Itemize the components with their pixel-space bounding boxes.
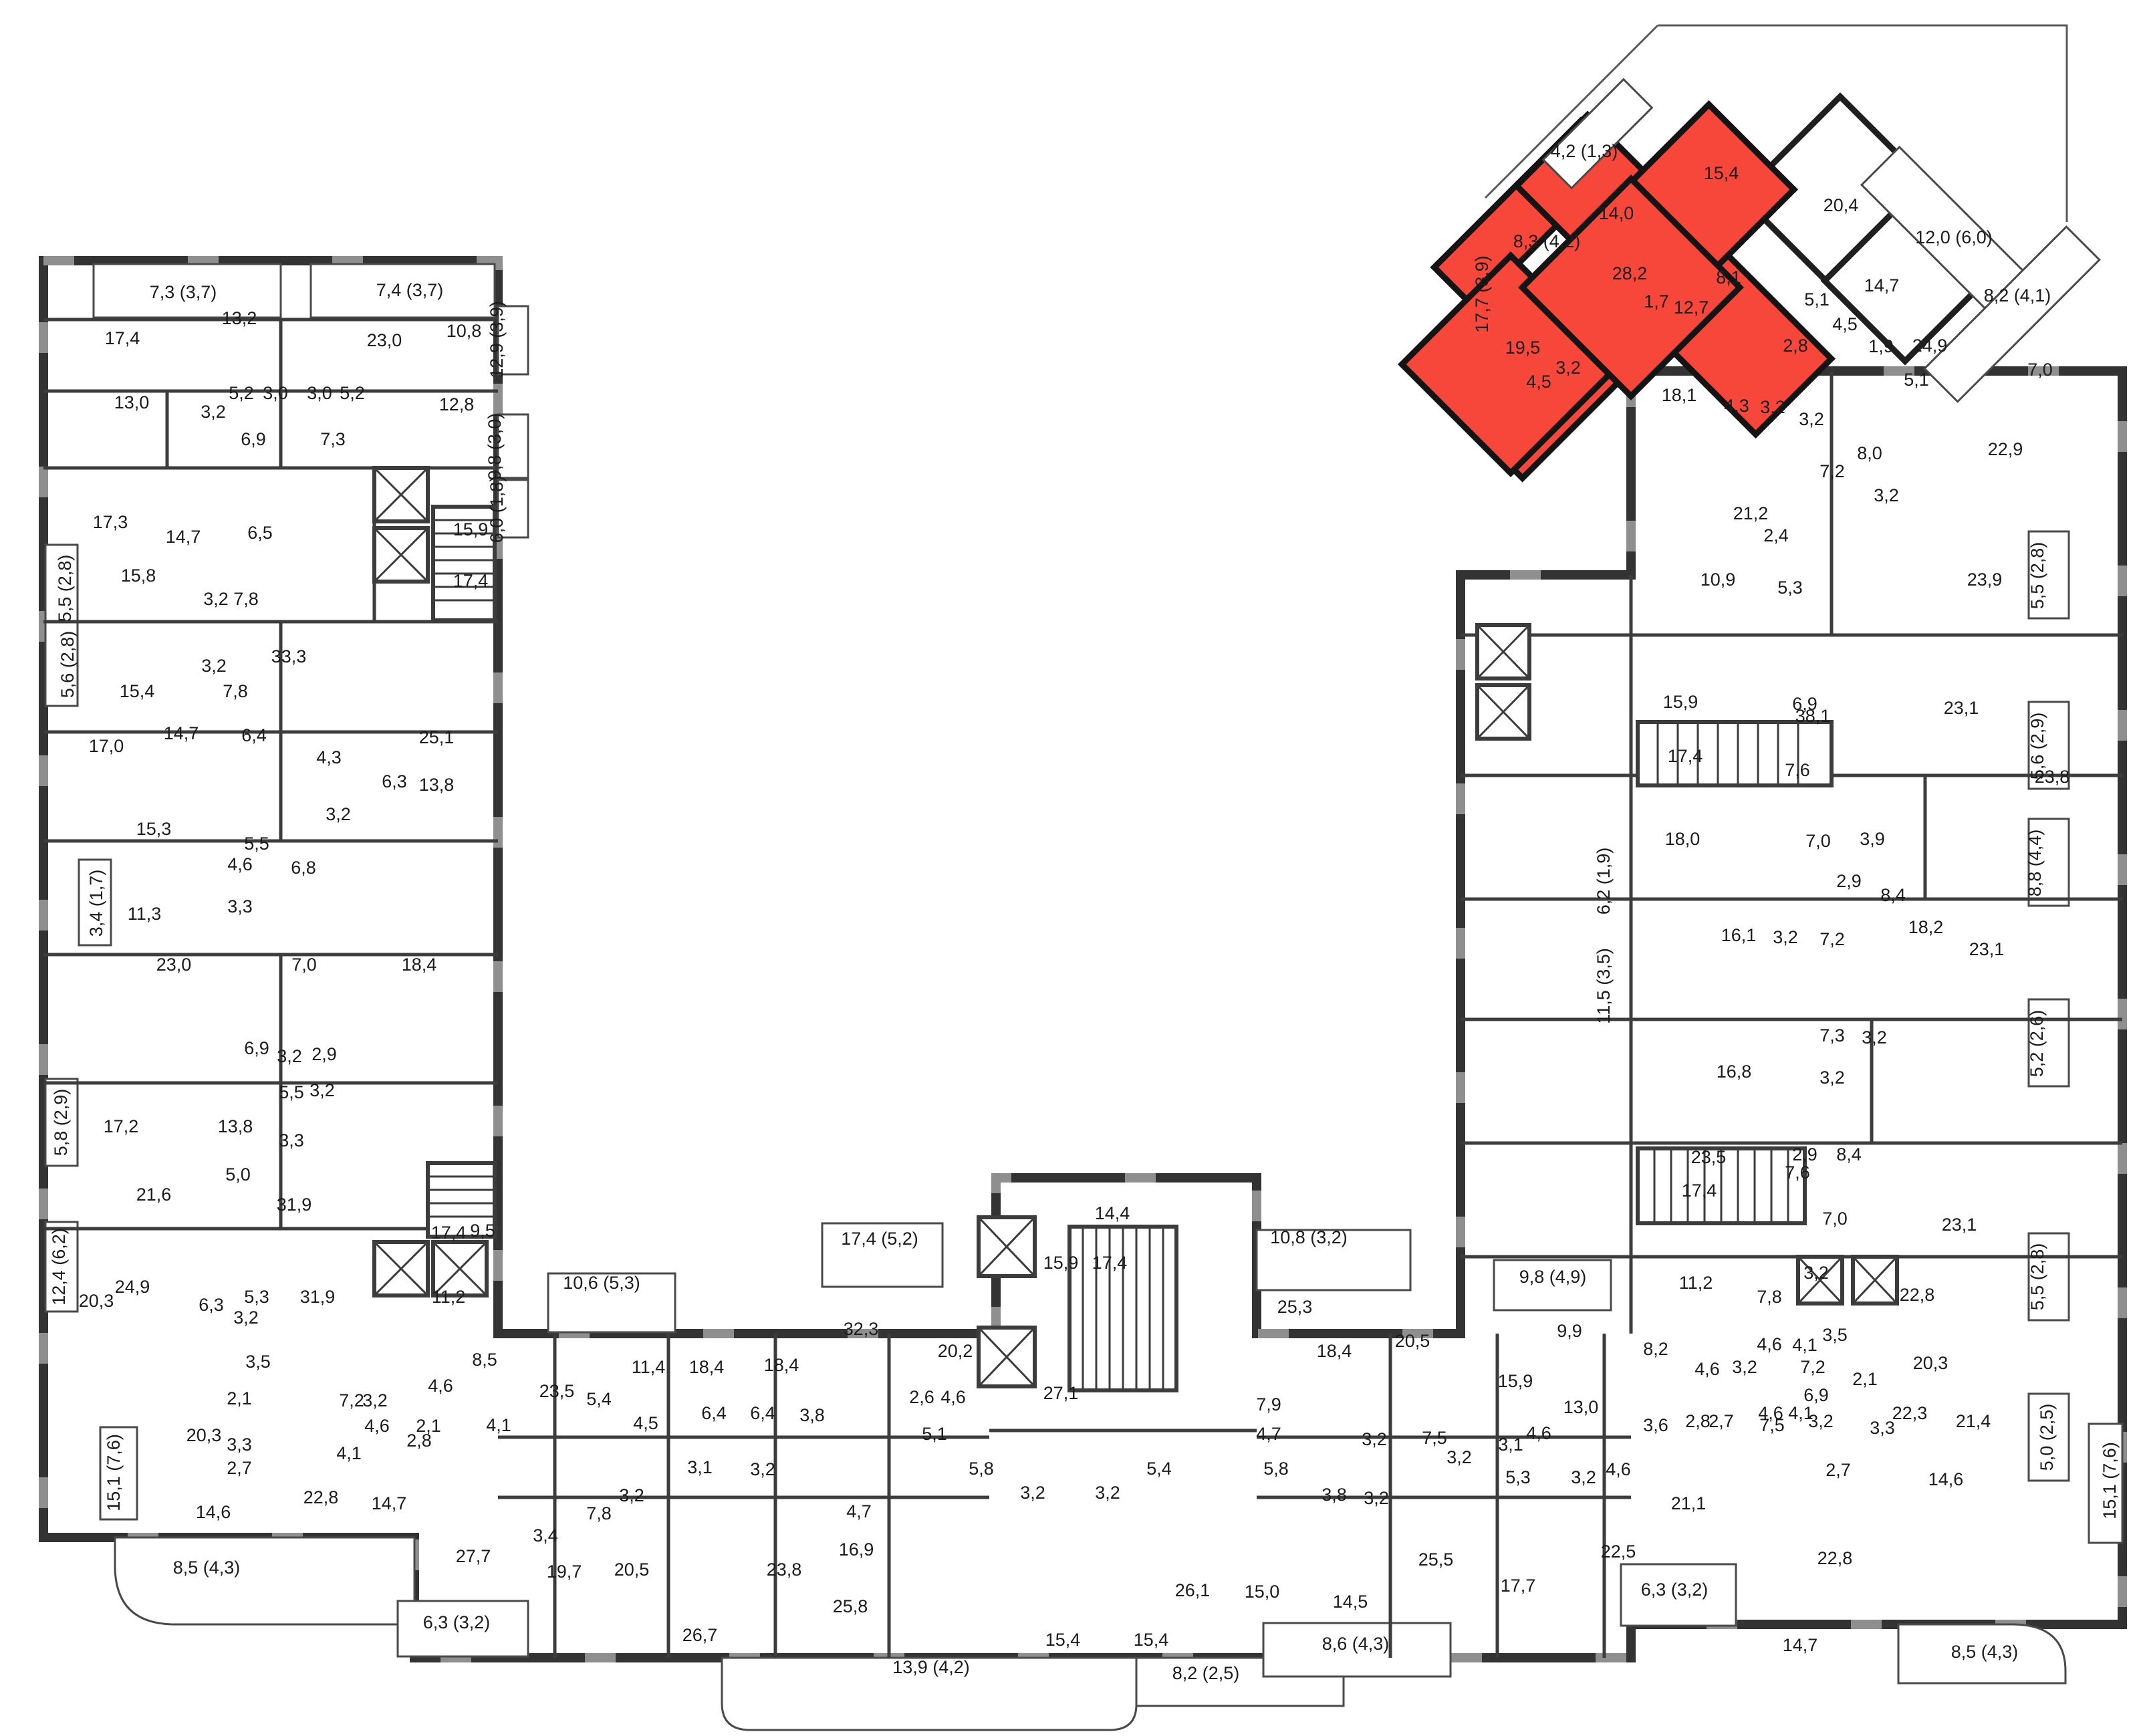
area-label: 14,4 — [1095, 1203, 1130, 1223]
area-label: 3,2 — [1555, 358, 1581, 378]
area-label: 3,1 — [1498, 1435, 1523, 1455]
area-label: 6,4 — [701, 1403, 727, 1423]
area-label: 4,6 — [428, 1376, 453, 1396]
area-label: 3,0 — [307, 383, 332, 403]
area-label: 17,7 (8,9) — [1472, 255, 1492, 333]
area-label: 18,2 — [1908, 917, 1944, 937]
area-label: 1,7 — [1644, 291, 1669, 312]
area-label: 17,3 — [93, 512, 128, 532]
area-label: 5,2 (2,6) — [2027, 1010, 2047, 1078]
area-label: 20,5 — [1395, 1331, 1430, 1351]
area-label: 3,6 — [1643, 1415, 1668, 1435]
area-label: 2,6 — [909, 1387, 934, 1407]
area-label: 13,8 — [218, 1116, 253, 1136]
area-label: 8,2 (2,5) — [1172, 1663, 1240, 1683]
area-label: 4,6 — [227, 854, 253, 874]
area-label: 18,0 — [1665, 829, 1701, 849]
area-label: 15,4 — [1704, 163, 1739, 183]
area-label: 12,0 (6,0) — [1915, 227, 1993, 247]
area-label: 16,8 — [1717, 1062, 1752, 1082]
area-label: 32,3 — [844, 1319, 879, 1339]
area-label: 3,3 — [227, 1435, 252, 1455]
area-label: 6,9 — [244, 1038, 269, 1058]
area-label: 19,7 — [547, 1562, 582, 1582]
area-label: 21,6 — [136, 1185, 172, 1205]
area-label: 12,4 (6,2) — [49, 1228, 69, 1306]
area-label: 16,9 — [839, 1539, 874, 1560]
area-label: 33,3 — [271, 646, 307, 666]
area-label: 18,4 — [1317, 1341, 1352, 1361]
area-label: 4,3 — [316, 747, 342, 767]
area-label: 8,2 (4,1) — [1984, 285, 2051, 305]
area-label: 4,2 (1,3) — [1551, 141, 1618, 161]
area-label: 8,8 (4,4) — [2025, 830, 2045, 897]
area-label: 18,4 — [689, 1357, 725, 1377]
area-label: 6,3 (3,2) — [1641, 1580, 1709, 1600]
area-label: 19,5 — [1505, 338, 1541, 358]
area-label: 8,0 — [1857, 443, 1882, 463]
area-label: 13,2 — [222, 308, 257, 328]
area-label: 38,1 — [1795, 706, 1831, 726]
area-label: 15,4 — [120, 681, 155, 701]
area-label: 12,9 (3,9) — [487, 301, 507, 378]
area-label: 21,1 — [1671, 1493, 1707, 1513]
area-label: 25,3 — [1277, 1297, 1313, 1317]
area-label: 5,1 — [922, 1424, 947, 1444]
area-label: 6,8 — [291, 858, 316, 878]
area-label: 3,2 — [201, 656, 227, 676]
area-label: 3,2 — [1364, 1488, 1389, 1508]
area-label: 7,3 — [320, 429, 346, 449]
area-label: 4,5 — [1832, 314, 1858, 334]
area-label: 3,2 — [1773, 927, 1798, 947]
area-label: 3,2 — [1808, 1411, 1834, 1431]
area-label: 15,9 — [1043, 1253, 1079, 1273]
area-label: 3,1 — [687, 1457, 713, 1477]
area-label: 4,6 — [940, 1387, 966, 1407]
area-label: 17,7 — [1501, 1576, 1536, 1596]
area-label: 23,0 — [156, 955, 192, 975]
area-label: 20,5 — [614, 1560, 650, 1580]
area-label: 3,2 — [1760, 397, 1785, 417]
area-label: 2,8 — [406, 1431, 432, 1451]
area-label: 14,7 — [166, 527, 201, 547]
area-label: 3,2 — [233, 1308, 259, 1328]
floor-plan-svg: 7,3 (3,7)7,4 (3,7)17,413,223,010,85,23,0… — [0, 0, 2139, 1736]
area-label: 15,9 — [1498, 1371, 1533, 1391]
area-label: 7,2 — [1800, 1357, 1826, 1377]
area-label: 15,9 — [1663, 692, 1698, 712]
area-label: 13,0 — [1563, 1397, 1599, 1417]
area-label: 5,3 — [1505, 1467, 1531, 1487]
area-label: 3,2 — [1362, 1429, 1387, 1449]
area-label: 3,5 — [245, 1352, 271, 1372]
area-label: 3,4 (1,7) — [86, 870, 106, 937]
area-label: 7,0 — [2027, 360, 2053, 380]
area-label: 4,7 — [846, 1501, 872, 1521]
area-label: 1,9 — [1868, 336, 1894, 356]
area-label: 13,9 (4,2) — [892, 1657, 970, 1677]
area-label: 17,4 — [453, 571, 489, 591]
area-label: 8,6 (4,3) — [1322, 1634, 1390, 1654]
area-label: 2,1 — [1852, 1369, 1878, 1389]
area-label: 23,8 — [767, 1560, 802, 1580]
area-label: 2,1 — [227, 1388, 252, 1408]
area-label: 23,5 — [539, 1381, 575, 1401]
area-label: 4,6 — [1606, 1459, 1631, 1479]
area-label: 9,5 — [470, 1221, 495, 1241]
area-label: 22,8 — [1817, 1548, 1853, 1568]
area-label: 8,5 (4,3) — [1951, 1642, 2019, 1662]
area-label: 20,3 — [186, 1425, 222, 1445]
area-label: 27,1 — [1043, 1383, 1079, 1403]
area-label: 15,1 (7,6) — [104, 1434, 124, 1511]
area-label: 3,2 — [1020, 1483, 1045, 1503]
area-label: 5,4 — [586, 1389, 612, 1409]
area-label: 12,8 — [439, 394, 475, 414]
area-label: 18,4 — [764, 1355, 799, 1375]
area-label: 20,2 — [938, 1341, 973, 1361]
area-label: 3,2 — [1571, 1467, 1596, 1487]
area-label: 23,8 — [2035, 767, 2070, 787]
area-label: 2,9 — [311, 1044, 337, 1064]
area-label: 2,7 — [1709, 1411, 1734, 1431]
area-label: 12,7 — [1674, 297, 1709, 318]
area-label: 3,8 — [799, 1405, 825, 1425]
area-label: 7,0 — [1805, 831, 1831, 851]
area-label: 7,2 — [1819, 929, 1845, 949]
area-label: 5,0 (2,5) — [2037, 1404, 2057, 1471]
area-label: 14,6 — [1928, 1469, 1964, 1489]
area-label: 6,3 (3,2) — [423, 1612, 491, 1632]
curved-balcony — [115, 1537, 414, 1624]
area-label: 11,3 — [128, 904, 162, 924]
area-label: 3,2 — [1803, 1263, 1829, 1283]
area-label: 3,3 — [227, 896, 253, 916]
area-label: 20,3 — [1913, 1353, 1948, 1373]
area-label: 20,3 — [79, 1291, 114, 1311]
area-label: 4,7 — [1256, 1424, 1281, 1444]
area-label: 3,0 — [263, 383, 288, 403]
area-label: 3,2 — [309, 1080, 335, 1100]
area-label: 17,2 — [104, 1116, 139, 1136]
area-label: 7,5 — [1422, 1428, 1447, 1448]
area-label: 23,5 — [1691, 1147, 1727, 1167]
area-label: 5,5 (2,8) — [55, 555, 75, 622]
area-label: 4,6 — [1694, 1359, 1720, 1379]
area-label: 26,7 — [682, 1625, 718, 1645]
area-label: 23,1 — [1942, 1215, 1977, 1235]
area-label: 3,5 — [1822, 1325, 1848, 1345]
area-label: 3,2 — [1862, 1027, 1887, 1047]
area-label: 9,8 (3,0) — [485, 413, 505, 481]
area-label: 6,4 — [241, 725, 267, 745]
area-label: 11,4 — [632, 1357, 666, 1377]
area-label: 15,8 — [121, 566, 156, 586]
area-label: 14,7 — [164, 723, 199, 743]
area-label: 2,9 — [1792, 1144, 1817, 1164]
area-label: 7,5 — [1759, 1415, 1785, 1435]
area-label: 3,8 — [1322, 1485, 1347, 1505]
area-label: 31,9 — [277, 1195, 312, 1215]
area-label: 13,8 — [419, 775, 455, 795]
area-label: 15,4 — [1134, 1630, 1169, 1650]
area-label: 15,4 — [1045, 1630, 1081, 1650]
area-label: 17,4 (5,2) — [841, 1229, 918, 1249]
area-label: 4,1 — [486, 1415, 511, 1435]
area-label: 5,3 — [1777, 578, 1803, 598]
area-label: 11,2 — [1679, 1273, 1713, 1293]
area-label: 2,7 — [227, 1458, 252, 1478]
area-label: 6,5 — [247, 523, 273, 543]
area-label: 2,4 — [1763, 525, 1789, 545]
area-label: 6,9 — [241, 429, 266, 449]
area-label: 10,8 — [447, 321, 482, 341]
area-label: 7,3 — [1819, 1025, 1845, 1045]
area-label: 3,2 — [1446, 1447, 1472, 1467]
area-label: 5,5 (2,8) — [2027, 1243, 2047, 1311]
area-label: 9,9 — [1557, 1321, 1582, 1341]
area-label: 14,5 — [1333, 1592, 1368, 1612]
area-label: 23,0 — [367, 330, 402, 350]
area-label: 21,4 — [1956, 1411, 1991, 1431]
area-label: 23,9 — [1967, 570, 2003, 590]
area-label: 2,9 — [1836, 871, 1862, 891]
area-label: 15,1 (7,6) — [2100, 1442, 2120, 1519]
area-label: 7,9 — [1256, 1394, 1281, 1414]
area-label: 5,2 — [229, 383, 254, 403]
area-label: 7,0 — [1822, 1209, 1848, 1229]
area-label: 8,4 — [1880, 885, 1906, 905]
area-label: 5,5 (2,8) — [2027, 542, 2047, 610]
area-label: 7,8 — [233, 589, 259, 609]
area-label: 22,5 — [1601, 1541, 1636, 1562]
area-label: 2,8 — [1783, 336, 1808, 356]
area-label: 4,5 — [1526, 372, 1551, 392]
area-label: 3,2 — [1799, 409, 1824, 429]
area-label: 3,2 — [201, 402, 226, 422]
area-label: 7,8 — [223, 681, 248, 701]
area-label: 3,2 — [1095, 1483, 1120, 1503]
area-label: 3,2 — [203, 589, 229, 609]
area-label: 6,0 (1,8) — [487, 476, 507, 543]
area-label: 5,8 — [969, 1459, 994, 1479]
area-label: 8,5 (4,3) — [173, 1558, 241, 1578]
area-label: 4,6 — [1757, 1334, 1782, 1354]
area-label: 8,3 (4,2) — [1513, 231, 1581, 251]
area-label: 5,8 — [1263, 1459, 1289, 1479]
area-label: 4,1 — [336, 1443, 362, 1463]
area-label: 14,7 — [372, 1493, 407, 1513]
area-label: 25,5 — [1418, 1549, 1454, 1570]
area-label: 3,2 — [1732, 1357, 1757, 1377]
area-label: 3,2 — [362, 1390, 388, 1410]
area-label: 6,3 — [382, 771, 407, 791]
area-label: 24,9 — [115, 1277, 150, 1297]
area-label: 17,4 — [431, 1223, 467, 1243]
area-label: 14,7 — [1864, 275, 1900, 295]
area-label: 3,2 — [750, 1459, 775, 1479]
area-label: 7,6 — [1785, 760, 1810, 780]
area-label: 5,0 — [225, 1164, 251, 1185]
area-label: 27,7 — [456, 1546, 491, 1566]
area-label: 3,2 — [1819, 1068, 1845, 1088]
area-label: 6,2 (1,9) — [1594, 848, 1614, 915]
area-label: 7,0 — [291, 955, 317, 975]
area-label: 2,7 — [1826, 1460, 1851, 1480]
area-label: 3,4 — [533, 1525, 558, 1545]
area-label: 4,6 — [1526, 1423, 1551, 1443]
area-label: 17,4 — [1668, 746, 1703, 766]
area-label: 7,2 — [339, 1390, 364, 1410]
floor-plan: 7,3 (3,7)7,4 (3,7)17,413,223,010,85,23,0… — [0, 0, 2139, 1736]
area-label: 17,4 — [105, 328, 140, 348]
area-label: 3,2 — [619, 1485, 644, 1505]
area-label: 9,8 (4,9) — [1519, 1267, 1587, 1287]
area-label: 5,1 — [1904, 370, 1929, 390]
area-label: 17,4 — [1682, 1181, 1717, 1201]
area-label: 5,8 (2,9) — [51, 1089, 71, 1156]
area-label: 18,4 — [402, 955, 437, 975]
area-label: 20,4 — [1823, 195, 1859, 215]
area-label: 3,9 — [1860, 829, 1885, 849]
area-label: 14,7 — [1783, 1635, 1818, 1655]
area-label: 25,8 — [833, 1596, 868, 1616]
area-label: 22,8 — [303, 1487, 339, 1507]
area-label: 8,5 — [472, 1350, 497, 1370]
area-label: 6,9 — [1803, 1385, 1829, 1405]
area-label: 26,1 — [1175, 1580, 1211, 1600]
area-label: 22,9 — [1988, 439, 2023, 459]
area-label: 3,2 — [326, 804, 351, 824]
area-label: 15,9 — [453, 519, 489, 539]
area-label: 4,1 — [1792, 1335, 1817, 1355]
area-label: 4,3 — [1724, 396, 1749, 416]
area-label: 7,6 — [1785, 1162, 1810, 1183]
area-label: 13,0 — [114, 392, 150, 412]
area-label: 15,3 — [136, 819, 172, 839]
area-label: 8,2 — [1643, 1339, 1668, 1359]
area-label: 5,3 — [244, 1287, 269, 1307]
area-label: 11,2 — [432, 1287, 466, 1307]
area-label: 6,4 — [750, 1403, 775, 1423]
area-label: 15,0 — [1245, 1582, 1280, 1602]
area-label: 3,3 — [1870, 1418, 1895, 1438]
area-label: 4,6 — [364, 1416, 390, 1436]
area-label: 11,5 (3,5) — [1594, 948, 1614, 1024]
area-label: 10,8 (3,2) — [1270, 1227, 1348, 1247]
area-label: 22,8 — [1900, 1285, 1935, 1305]
area-label: 23,1 — [1944, 698, 1979, 718]
area-label: 7,8 — [1757, 1287, 1782, 1307]
area-label: 5,2 — [340, 383, 365, 403]
area-label: 3,3 — [279, 1130, 304, 1150]
area-label: 7,8 — [586, 1503, 612, 1523]
area-label: 3,2 — [1874, 485, 1899, 505]
area-label: 24,9 — [1912, 336, 1948, 356]
area-label: 14,0 — [1599, 203, 1634, 223]
area-label: 2,8 — [1685, 1411, 1711, 1431]
area-label: 5,6 (2,8) — [57, 631, 78, 699]
area-label: 22,3 — [1892, 1403, 1928, 1423]
area-label: 28,2 — [1612, 263, 1648, 283]
area-label: 17,0 — [89, 736, 124, 756]
area-label: 14,6 — [196, 1502, 231, 1522]
area-label: 5,4 — [1146, 1459, 1172, 1479]
area-label: 10,6 (5,3) — [563, 1273, 640, 1293]
area-label: 18,1 — [1662, 385, 1697, 405]
area-label: 5,5 — [279, 1082, 304, 1102]
area-label: 21,2 — [1733, 503, 1769, 523]
area-label: 8,4 — [1836, 1144, 1862, 1164]
area-label: 10,9 — [1701, 570, 1736, 590]
area-label: 23,1 — [1969, 939, 2005, 959]
area-label: 17,4 — [1092, 1253, 1128, 1273]
area-label: 5,5 — [244, 834, 269, 854]
area-label: 31,9 — [300, 1287, 336, 1307]
area-label: 5,1 — [1804, 289, 1830, 309]
area-label: 7,2 — [1819, 461, 1845, 481]
area-label: 25,1 — [419, 727, 455, 747]
area-label: 7,4 (3,7) — [376, 280, 444, 300]
area-label: 6,3 — [199, 1295, 224, 1315]
area-label: 7,3 (3,7) — [150, 282, 217, 302]
area-label: 3,2 — [277, 1046, 302, 1066]
area-label: 8,1 — [1716, 267, 1741, 287]
area-label: 16,1 — [1721, 925, 1757, 945]
area-label: 4,5 — [633, 1413, 658, 1433]
